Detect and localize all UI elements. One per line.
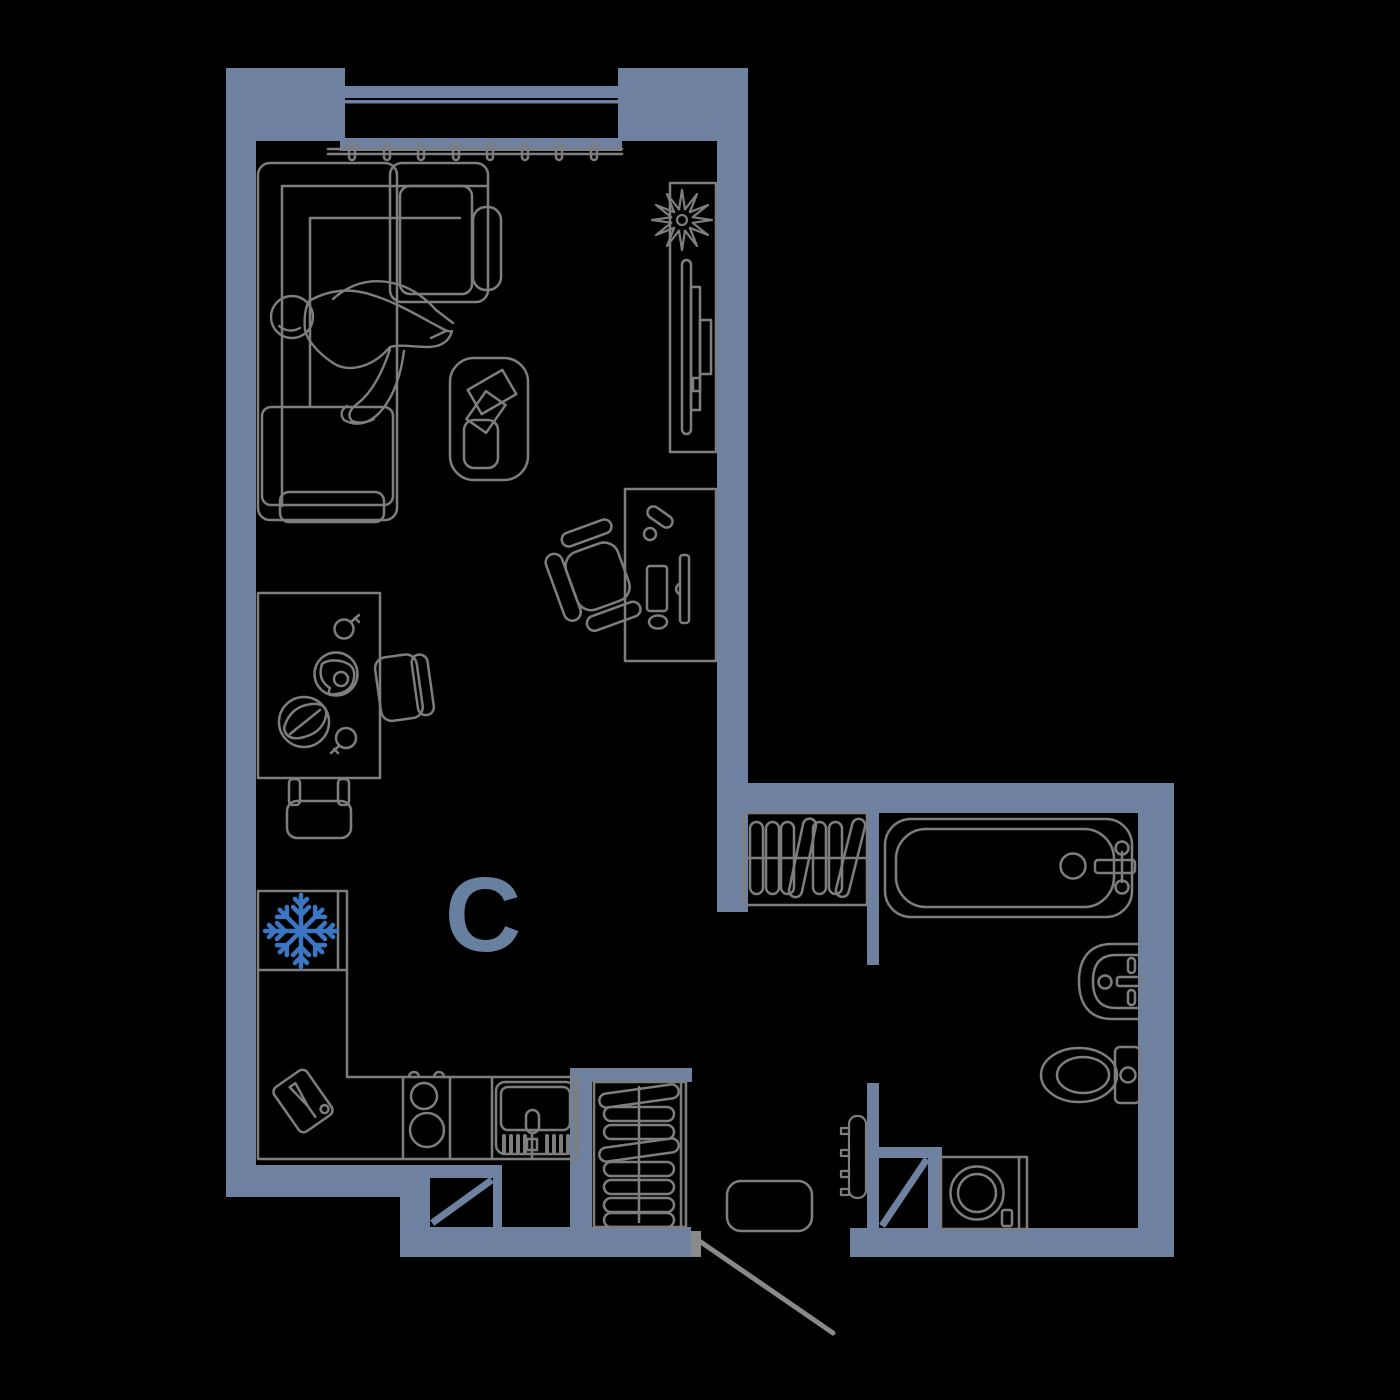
extension-top-wall [717,783,1174,813]
cutting-board [271,1067,335,1134]
tv [682,260,711,434]
extension-bottom-wall [850,1228,1174,1257]
hall-closet [744,813,867,905]
kitchen-shaft-diagonal [435,1182,489,1221]
coffee-table [450,358,528,480]
extension-right-wall [1138,783,1174,1257]
keyboard [647,566,667,611]
monitor [676,555,689,623]
towel-rail [841,1116,866,1198]
bath-shaft-diagonal [884,1162,925,1223]
corner-sofa [258,163,501,522]
kitchen-shaft-right-strip [493,1178,502,1233]
wardrobe [594,1082,686,1227]
plan-label: С [445,856,522,974]
bath-partition-upper [867,813,879,965]
plant [652,190,712,250]
kitchen-sink [496,1082,575,1159]
kitchen-counter [258,970,578,1159]
dining-chair-bottom [287,779,351,838]
vestibule-bottom-wall [400,1227,691,1257]
dining-chair-right [374,652,435,723]
bath-partition-lower [867,1083,879,1257]
dining-table [258,593,380,778]
washing-machine [941,1157,1027,1229]
walls [226,68,1174,1257]
floor-plan-page: С [0,0,1400,1400]
wardrobe-partition-strip [570,1082,592,1233]
desk [625,489,716,661]
door-leaf [695,1238,833,1333]
desk-lamp [644,504,675,540]
doormat [727,1181,812,1231]
furniture [258,143,1142,1231]
kitchen-bottom-wall [226,1165,430,1197]
bath-shaft-top-stub [879,1147,942,1158]
stove [409,1072,444,1147]
wardrobe-top-block [570,1068,692,1082]
toilet [1041,1047,1140,1103]
bathtub [885,819,1135,917]
floor-plan-svg: С [0,0,1400,1400]
entrance-door [691,1231,833,1333]
top-left-wall-block [226,68,345,141]
left-wall [226,68,256,1197]
snowflake-icon [265,895,337,967]
office-chair [538,518,643,640]
window-glass-line [340,100,622,104]
kitchen-shaft-top-band [430,1165,502,1178]
window-outer-band [340,86,622,98]
washbasin [1079,944,1142,1019]
mouse [649,616,667,629]
